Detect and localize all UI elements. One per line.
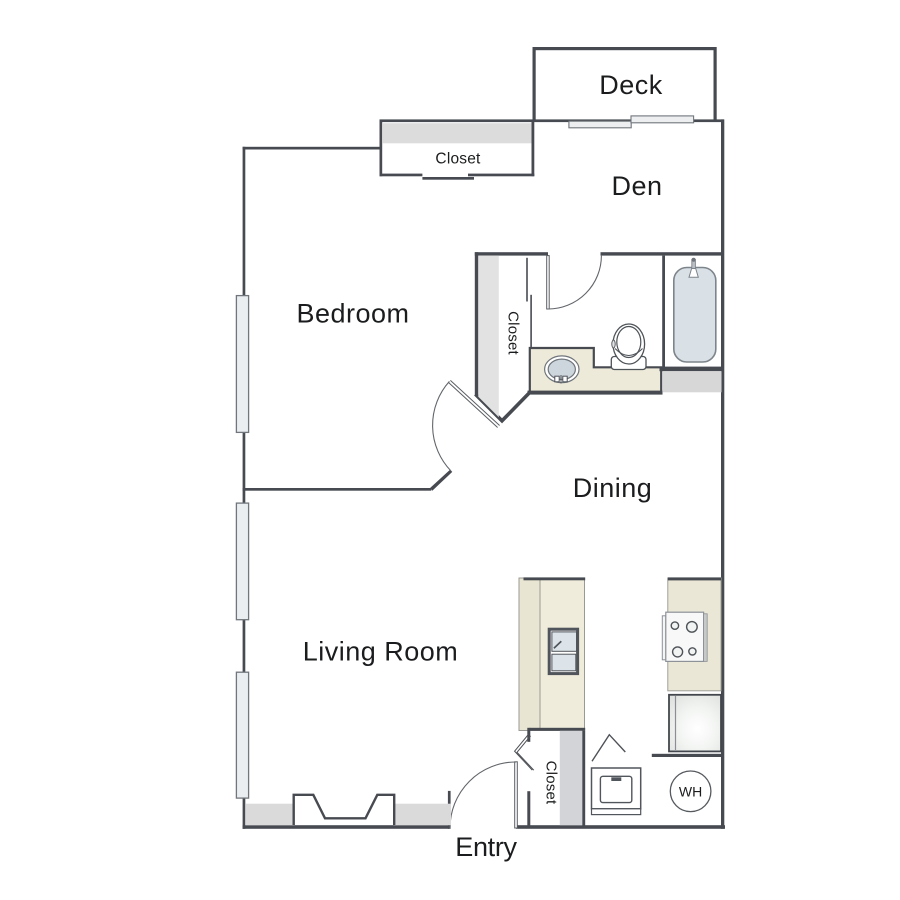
svg-text:Closet: Closet [435, 151, 481, 168]
svg-text:Closet: Closet [543, 761, 560, 805]
svg-text:Closet: Closet [505, 311, 522, 355]
svg-text:Entry: Entry [455, 832, 517, 862]
svg-text:Living Room: Living Room [303, 637, 459, 667]
svg-text:Dining: Dining [573, 473, 653, 503]
svg-text:Den: Den [611, 171, 662, 201]
svg-text:Bedroom: Bedroom [296, 299, 409, 329]
svg-text:WH: WH [679, 783, 702, 799]
svg-text:Deck: Deck [599, 70, 663, 100]
